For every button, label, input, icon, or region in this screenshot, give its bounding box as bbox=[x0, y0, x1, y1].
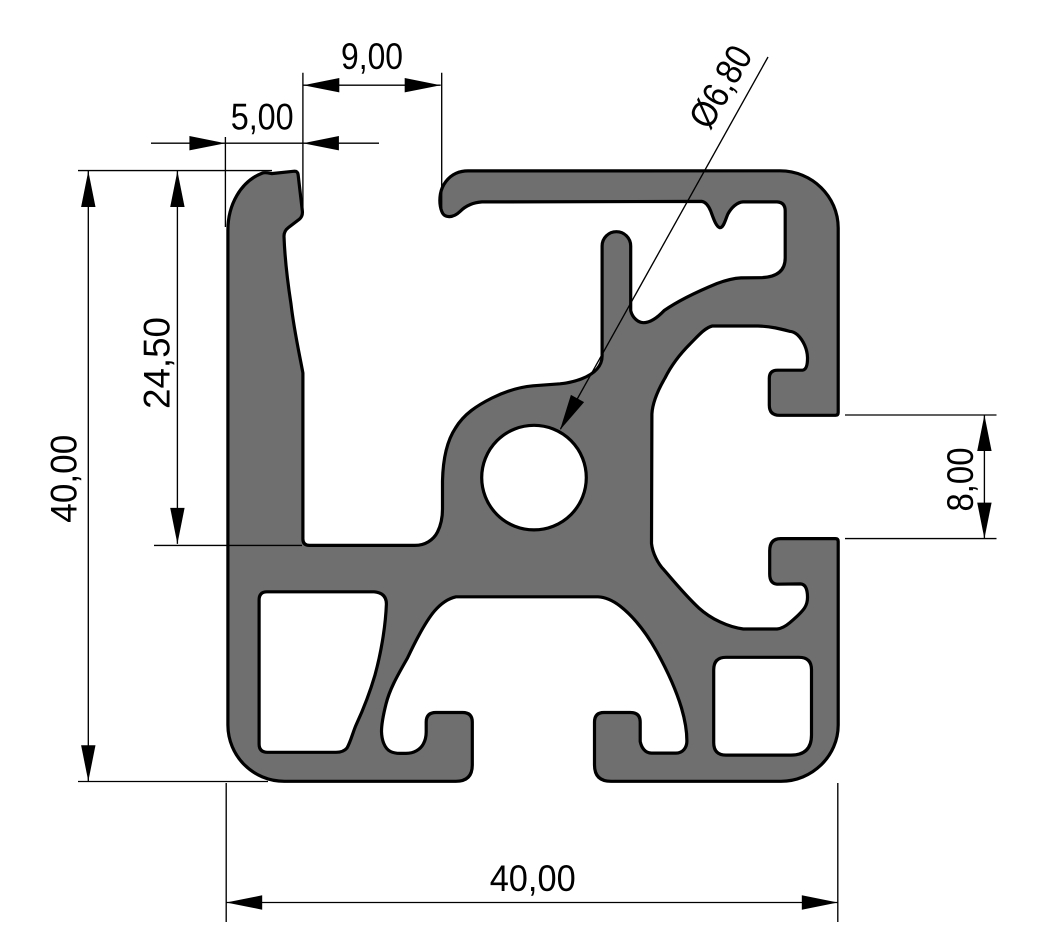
svg-text:5,00: 5,00 bbox=[231, 97, 294, 138]
svg-text:9,00: 9,00 bbox=[341, 36, 403, 77]
svg-text:40,00: 40,00 bbox=[44, 435, 85, 523]
svg-text:40,00: 40,00 bbox=[490, 858, 576, 899]
svg-text:24,50: 24,50 bbox=[136, 317, 177, 409]
svg-text:8,00: 8,00 bbox=[940, 448, 981, 512]
